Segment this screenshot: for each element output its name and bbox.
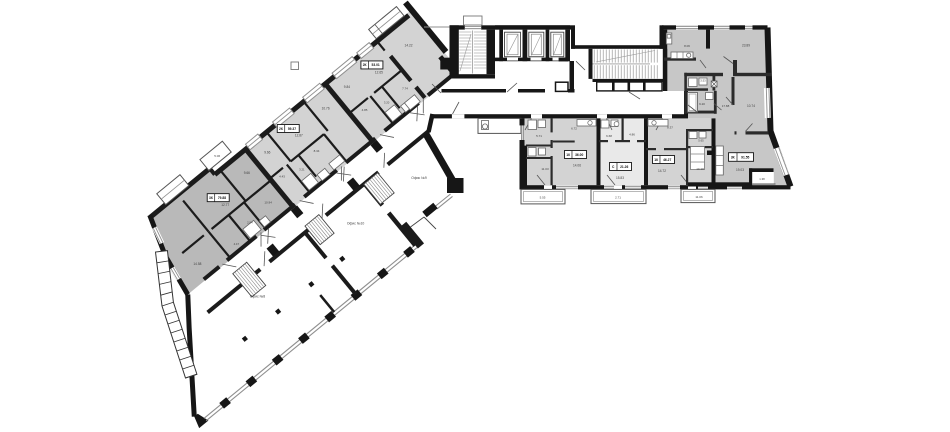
svg-text:59.37: 59.37: [288, 127, 296, 131]
svg-text:1.38: 1.38: [759, 177, 765, 181]
svg-text:11.03: 11.03: [541, 167, 549, 171]
svg-text:8.37: 8.37: [667, 126, 673, 130]
svg-text:9.20: 9.20: [699, 102, 705, 106]
svg-text:5.06: 5.06: [214, 154, 220, 158]
svg-text:21.26: 21.26: [620, 165, 628, 169]
svg-text:10.38: 10.38: [696, 167, 704, 171]
svg-text:12.77: 12.77: [221, 203, 229, 207]
svg-text:4.85: 4.85: [362, 108, 368, 112]
svg-text:7.74: 7.74: [402, 87, 408, 91]
svg-text:4.86: 4.86: [629, 133, 635, 137]
svg-text:9.84: 9.84: [344, 85, 350, 89]
svg-text:14.72: 14.72: [658, 169, 666, 173]
svg-text:5.55: 5.55: [540, 196, 546, 200]
svg-text:2.94: 2.94: [247, 220, 253, 224]
svg-text:53.01: 53.01: [372, 63, 380, 67]
svg-text:15.83: 15.83: [616, 176, 624, 180]
svg-text:14.58: 14.58: [193, 262, 201, 266]
svg-text:14.06: 14.06: [573, 164, 581, 168]
svg-text:23.89: 23.89: [742, 44, 750, 48]
svg-text:3.20: 3.20: [384, 100, 390, 104]
svg-text:12.87: 12.87: [295, 134, 303, 138]
svg-text:2.71: 2.71: [615, 196, 621, 200]
svg-text:10.74: 10.74: [747, 104, 755, 108]
svg-text:8.34: 8.34: [314, 149, 320, 153]
svg-text:79.88: 79.88: [218, 196, 226, 200]
svg-text:4.43: 4.43: [279, 175, 285, 179]
svg-text:Офис №8: Офис №8: [250, 294, 266, 298]
svg-text:3.21: 3.21: [299, 167, 305, 171]
svg-text:11.06: 11.06: [695, 195, 703, 199]
svg-text:10.94: 10.94: [264, 200, 272, 204]
svg-text:3.53: 3.53: [700, 79, 706, 83]
svg-text:12.65: 12.65: [375, 70, 383, 74]
svg-text:9.66: 9.66: [244, 171, 250, 175]
svg-text:Офис №10: Офис №10: [347, 222, 364, 226]
svg-text:8.06: 8.06: [684, 44, 690, 48]
svg-text:5.65: 5.65: [698, 139, 704, 143]
svg-text:19.03: 19.03: [736, 168, 744, 172]
svg-text:36.00: 36.00: [575, 153, 583, 157]
svg-text:9.66: 9.66: [264, 150, 270, 154]
svg-text:6.68: 6.68: [606, 134, 612, 138]
svg-text:46.27: 46.27: [663, 158, 671, 162]
svg-text:4.47: 4.47: [234, 242, 240, 246]
svg-text:14.22: 14.22: [405, 44, 413, 48]
svg-text:Офис №9: Офис №9: [411, 176, 427, 180]
svg-text:17.88: 17.88: [722, 104, 730, 108]
svg-text:10.76: 10.76: [322, 106, 330, 110]
svg-text:91.55: 91.55: [741, 155, 749, 159]
svg-text:6.72: 6.72: [571, 127, 577, 131]
svg-text:5.71: 5.71: [536, 134, 542, 138]
